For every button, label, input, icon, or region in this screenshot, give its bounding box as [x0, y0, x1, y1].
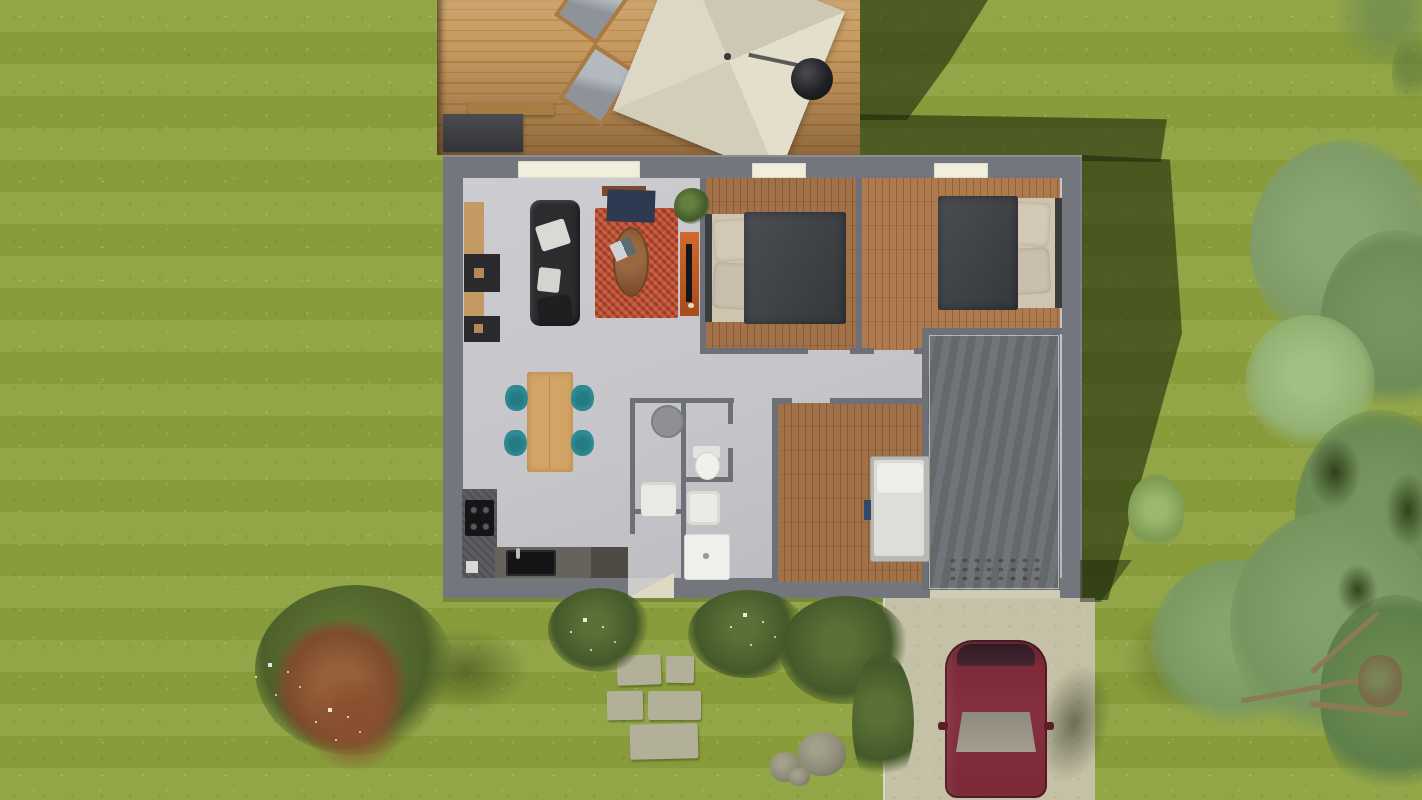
wall-bedroom3-north-a — [778, 398, 792, 404]
washbasin[interactable] — [687, 491, 720, 525]
shelf-decor-b — [474, 324, 483, 333]
toilet[interactable] — [695, 452, 720, 480]
ornamental-bush-red-low[interactable] — [300, 680, 410, 770]
dining-table-seam — [549, 374, 550, 470]
wall-bedroom1-bedroom2 — [856, 178, 862, 352]
garage-door-threshold — [930, 590, 1060, 598]
round-basin[interactable] — [651, 405, 684, 438]
dining-table[interactable] — [527, 372, 573, 472]
shelf-unit-wood-mid[interactable] — [464, 292, 484, 316]
kitchen-appliance — [466, 561, 478, 573]
shower-drain — [703, 553, 709, 559]
parasol-pole — [724, 53, 731, 60]
car-mirror-left — [938, 722, 948, 730]
car-mirror-right — [1044, 722, 1054, 730]
stepping-stone-5 — [630, 723, 699, 760]
wall-bedroom3-north-b — [830, 398, 928, 404]
boulder-small[interactable] — [788, 768, 810, 786]
sofa-dark-cushion — [536, 294, 574, 326]
stepping-stone-4 — [648, 691, 701, 720]
navy-throw-blanket[interactable] — [606, 189, 655, 223]
sofa-cushion — [537, 267, 561, 293]
tv-screen — [686, 244, 692, 302]
dining-chair-3[interactable] — [571, 385, 594, 411]
dining-chair-1[interactable] — [505, 385, 528, 411]
dining-chair-2[interactable] — [504, 430, 527, 456]
car-windshield — [956, 712, 1036, 752]
bed3-blue-accent — [864, 500, 871, 520]
tree-canopy-gap-a — [1300, 425, 1370, 520]
induction-cooktop[interactable] — [465, 500, 494, 536]
bbq-grill[interactable] — [791, 58, 833, 100]
wall-wc-east-a — [728, 398, 733, 424]
stepping-stone-3 — [607, 691, 644, 721]
shrub-path-west[interactable] — [548, 588, 652, 672]
bed1-headboard — [705, 214, 712, 322]
wall-wc-east-b — [728, 448, 733, 482]
dining-chair-4[interactable] — [571, 430, 594, 456]
stepping-stone-2 — [666, 656, 694, 683]
bedroom2-window — [934, 163, 988, 178]
coffee-table[interactable] — [613, 227, 649, 297]
garage-tire-marks — [947, 556, 1047, 582]
bedroom1-window — [752, 163, 806, 178]
bed2-duvet — [938, 196, 1018, 310]
wall-hall-bedroom1b — [850, 348, 874, 354]
shelf-decor-a — [474, 268, 484, 278]
bed2-headboard — [1055, 198, 1062, 308]
wall-bedroom3-west — [772, 398, 778, 582]
wall-hall-bedroom1 — [700, 348, 808, 354]
garage-floor — [928, 334, 1060, 590]
kitchen-faucet — [516, 548, 520, 559]
tv-stand-decor — [688, 303, 694, 308]
bed1-duvet — [744, 212, 846, 324]
car-rear-window — [957, 644, 1035, 666]
render-viewport[interactable] — [0, 0, 1422, 800]
tree-trunk — [1358, 655, 1402, 707]
small-bush-east[interactable] — [1128, 474, 1184, 552]
washing-machine[interactable] — [641, 482, 676, 516]
outdoor-kitchen-bench[interactable] — [443, 114, 523, 152]
living-room-window — [518, 161, 640, 178]
shelf-unit-wood-top[interactable] — [464, 202, 484, 254]
bed3-pillow — [876, 462, 924, 494]
shrub-driveway-west[interactable] — [852, 652, 914, 792]
kitchen-sink[interactable] — [506, 550, 556, 576]
